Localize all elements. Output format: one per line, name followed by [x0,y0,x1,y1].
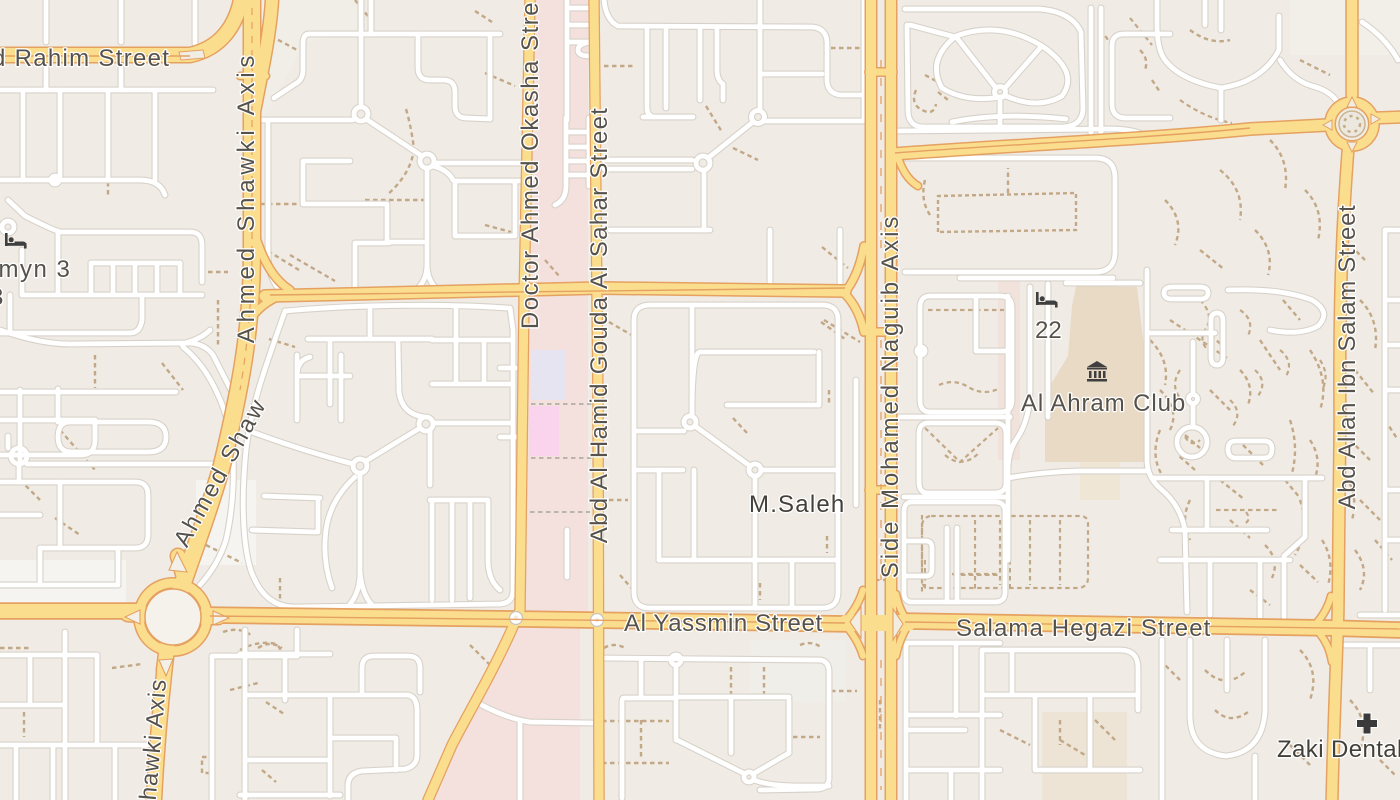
svg-text:Ahmed Shawki Axis: Ahmed Shawki Axis [233,51,260,343]
svg-text:Zaki Dental: Zaki Dental [1277,736,1400,763]
svg-text:Doctor Ahmed Okasha Stre: Doctor Ahmed Okasha Stre [517,1,544,329]
svg-text:Side Mohamed Naguib Axis: Side Mohamed Naguib Axis [877,214,904,578]
svg-text:d Rahim Street: d Rahim Street [0,45,170,72]
svg-text:Abd Allah Ibn Salam Street: Abd Allah Ibn Salam Street [1334,204,1361,509]
svg-text:M.Saleh: M.Saleh [749,491,845,518]
svg-text:22: 22 [1035,317,1062,344]
svg-text:smyn 3: smyn 3 [0,256,71,283]
svg-text:3: 3 [0,284,3,311]
svg-text:Salama Hegazi Street: Salama Hegazi Street [956,615,1211,642]
svg-text:Al Yassmin Street: Al Yassmin Street [624,610,823,637]
svg-text:Abd Al Hamid Gouda Al Sahar St: Abd Al Hamid Gouda Al Sahar Street [586,107,613,543]
svg-text:Al Ahram Club: Al Ahram Club [1021,390,1186,417]
